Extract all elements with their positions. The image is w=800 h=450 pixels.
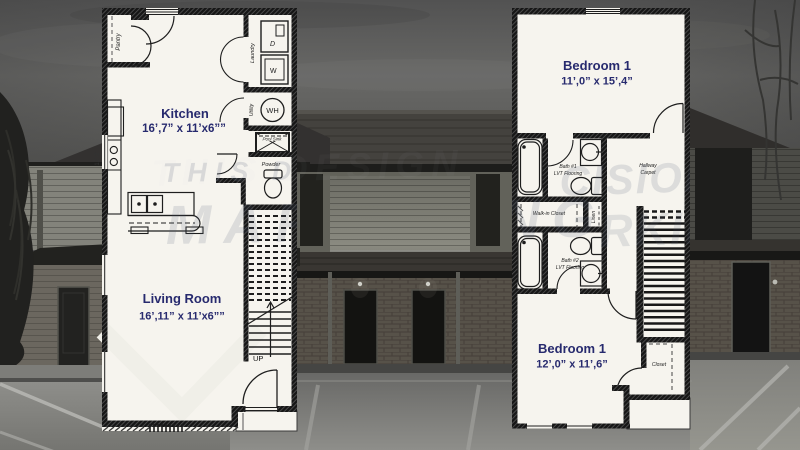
svg-text:UP: UP (253, 354, 263, 363)
svg-text:Bedroom 1: Bedroom 1 (563, 58, 631, 73)
svg-text:Living Room: Living Room (143, 291, 222, 306)
svg-text:Utility: Utility (249, 103, 255, 116)
svg-text:Pool Sink: Pool Sink (262, 137, 282, 142)
svg-text:12’,0” x 11’,6”: 12’,0” x 11’,6” (536, 359, 608, 371)
svg-text:11’,0” x 15’,4”: 11’,0” x 15’,4” (561, 76, 633, 88)
svg-text:Closet: Closet (652, 362, 667, 368)
svg-text:16’,7” x 11’x6””: 16’,7” x 11’x6”” (142, 123, 226, 135)
svg-text:Kitchen: Kitchen (161, 106, 209, 121)
svg-text:Bedroom 1: Bedroom 1 (538, 341, 606, 356)
svg-text:Laundry: Laundry (250, 42, 256, 63)
svg-text:Pantry: Pantry (116, 32, 122, 50)
svg-text:D: D (270, 41, 275, 48)
svg-text:16’,11” x 11’x6””: 16’,11” x 11’x6”” (139, 311, 225, 323)
svg-text:WH: WH (266, 106, 279, 115)
svg-text:W: W (270, 68, 277, 75)
svg-text:12'-2": 12'-2" (95, 150, 101, 165)
svg-text:Bath #2: Bath #2 (561, 258, 578, 264)
